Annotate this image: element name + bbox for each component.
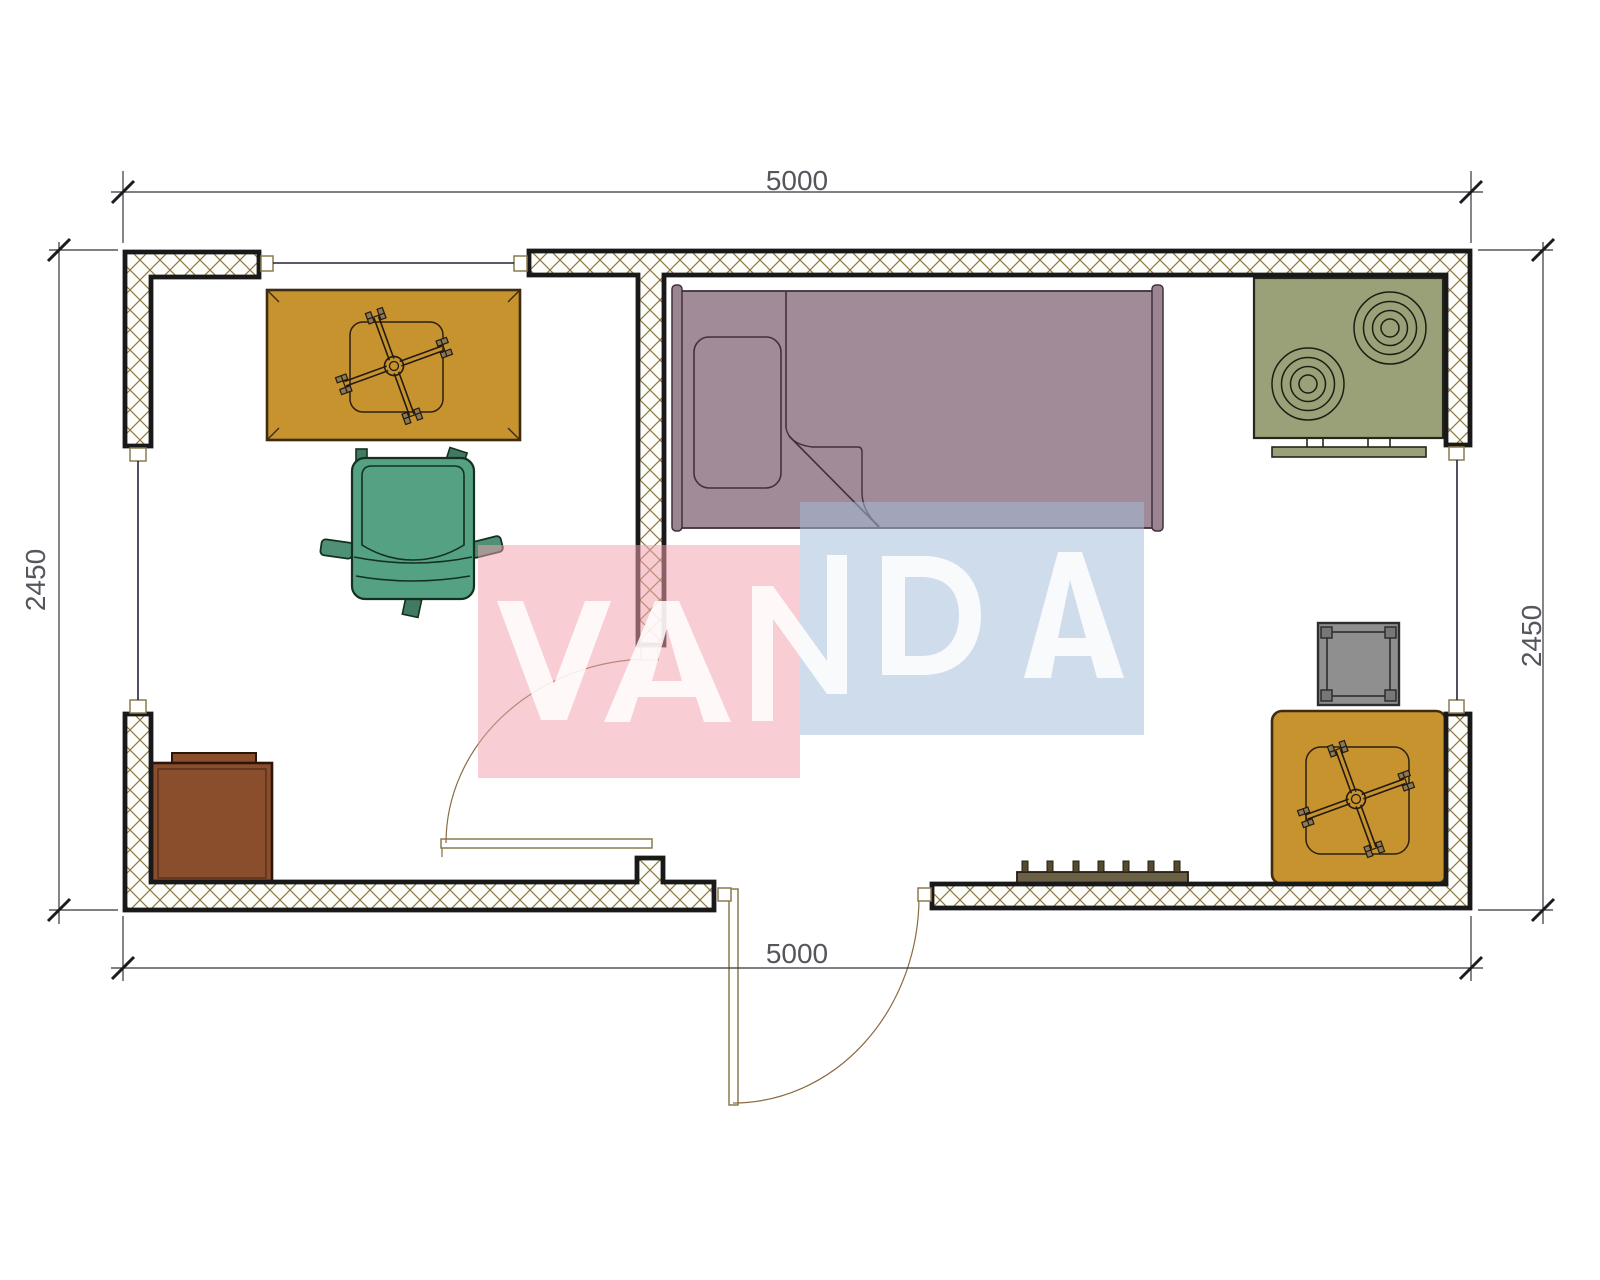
svg-text:5000: 5000 <box>766 938 828 969</box>
svg-text:2450: 2450 <box>20 549 51 611</box>
svg-text:5000: 5000 <box>766 165 828 196</box>
svg-text:2450: 2450 <box>1516 605 1547 667</box>
